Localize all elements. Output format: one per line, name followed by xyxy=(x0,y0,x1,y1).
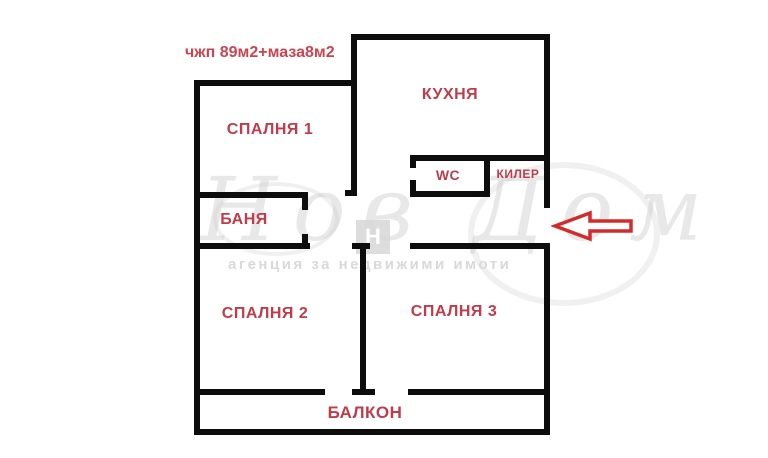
room-label-bathroom: БАНЯ xyxy=(204,211,284,229)
wall-right-upper xyxy=(544,34,550,208)
wall-corridor-bottom-right xyxy=(410,243,550,249)
entrance-arrow-icon xyxy=(551,209,635,243)
wall-balcony-top-left xyxy=(194,389,325,395)
wall-kitchen-left xyxy=(351,34,357,196)
wall-kitchen-left-cap xyxy=(345,190,351,196)
wall-bathroom-door-jamb-top xyxy=(302,192,308,210)
wall-balcony-top-mid xyxy=(352,389,375,395)
wall-right-lower xyxy=(544,244,550,435)
area-annotation: чжп 89м2+маза8м2 xyxy=(185,44,335,62)
room-label-kitchen: КУХНЯ xyxy=(400,86,500,104)
wall-wc-door-jamb-top xyxy=(410,155,416,168)
wall-balcony-bottom xyxy=(194,429,550,435)
room-label-bedroom1: СПАЛНЯ 1 xyxy=(200,121,340,139)
wall-bathroom-top xyxy=(194,192,308,198)
room-label-closet: КИЛЕР xyxy=(490,167,546,181)
wall-wc-bottom xyxy=(410,191,490,197)
room-label-bedroom3: СПАЛНЯ 3 xyxy=(384,303,524,321)
wall-balcony-top-right xyxy=(408,389,550,395)
floor-plan: Нов Дом Н агенция за недвижими имоти чжп… xyxy=(0,0,768,458)
wall-corridor-bottom-left xyxy=(194,243,310,249)
room-label-wc: WC xyxy=(420,167,476,183)
wall-bedroom-divider xyxy=(360,243,366,392)
wall-bedroom1-top xyxy=(194,80,357,86)
watermark-tagline: агенция за недвижими имоти xyxy=(228,256,511,273)
wall-kitchen-top xyxy=(352,34,550,40)
wall-wc-closet-top xyxy=(410,155,550,161)
room-label-balcony: БАЛКОН xyxy=(310,403,420,423)
room-label-bedroom2: СПАЛНЯ 2 xyxy=(195,305,335,323)
